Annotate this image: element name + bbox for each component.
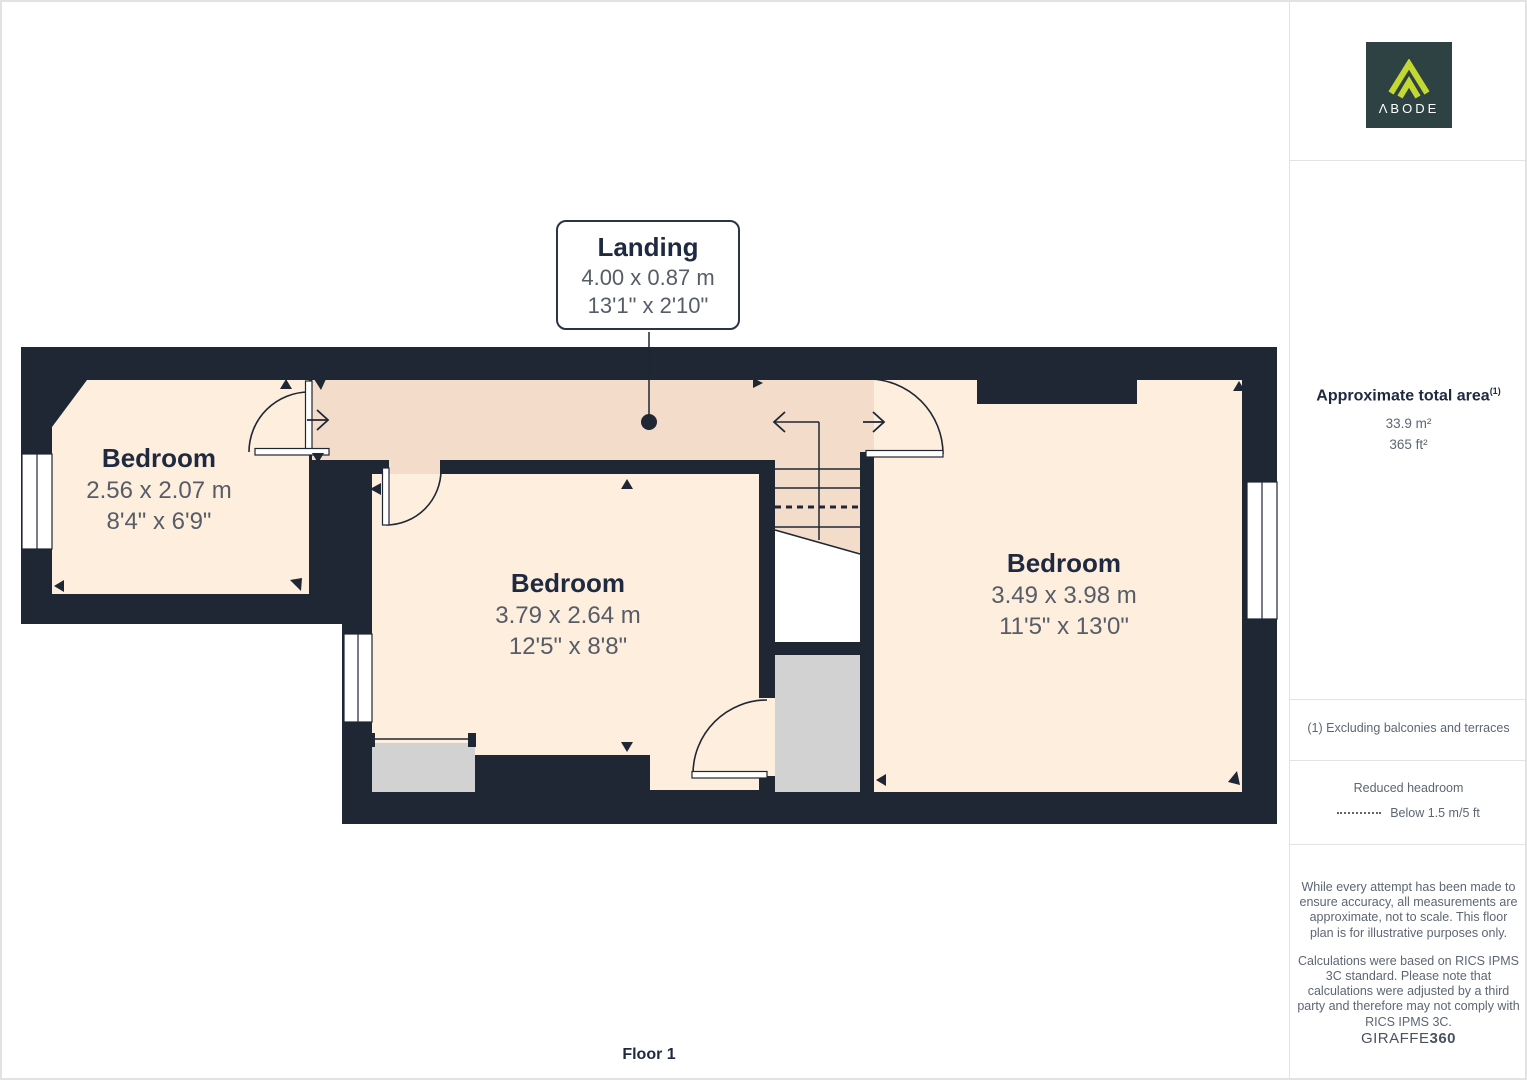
room-name: Bedroom bbox=[86, 442, 231, 475]
room-name: Bedroom bbox=[991, 547, 1136, 580]
floorplan-drawing bbox=[2, 2, 1289, 1080]
reduced-headroom-legend: Below 1.5 m/5 ft bbox=[1390, 805, 1480, 821]
room-size-metric: 3.49 x 3.98 m bbox=[991, 580, 1136, 611]
disclaimer-accuracy: While every attempt has been made to ens… bbox=[1297, 880, 1521, 941]
doorway-stairs bbox=[759, 698, 775, 776]
doorway-right bbox=[860, 380, 874, 454]
abode-logo: ΛBODE bbox=[1366, 42, 1452, 128]
floorplan-page: Bedroom 2.56 x 2.07 m 8'4" x 6'9" Bedroo… bbox=[0, 0, 1527, 1080]
stairs-right-wall bbox=[860, 452, 874, 792]
giraffe360-name: GIRAFFE bbox=[1361, 1030, 1430, 1047]
landing-label: Landing 4.00 x 0.87 m 13'1" x 2'10" bbox=[556, 220, 740, 330]
divider bbox=[1290, 760, 1527, 761]
window-middle-bedroom bbox=[344, 634, 372, 722]
room-size-metric: 2.56 x 2.07 m bbox=[86, 475, 231, 506]
bedroom-middle-label: Bedroom 3.79 x 2.64 m 12'5" x 8'8" bbox=[495, 567, 640, 662]
reduced-headroom-dash-icon bbox=[1337, 812, 1381, 814]
landing-floor bbox=[312, 380, 874, 462]
total-area-imperial: 365 ft² bbox=[1290, 434, 1527, 455]
total-area-metric: 33.9 m² bbox=[1290, 413, 1527, 434]
reduced-headroom-section: Reduced headroom Below 1.5 m/5 ft bbox=[1290, 780, 1527, 821]
room-size-metric: 3.79 x 2.64 m bbox=[495, 600, 640, 631]
total-area-section: Approximate total area(1) 33.9 m² 365 ft… bbox=[1290, 386, 1527, 455]
window-right-bedroom bbox=[1247, 482, 1277, 619]
room-name: Landing bbox=[558, 231, 738, 264]
giraffe360-brand: GIRAFFE360 bbox=[1290, 1030, 1527, 1047]
chimney-breast bbox=[977, 380, 1137, 404]
footnote-ref: (1) bbox=[1490, 386, 1501, 396]
abode-logo-text: ΛBODE bbox=[1379, 101, 1440, 116]
disclaimer-section: While every attempt has been made to ens… bbox=[1290, 880, 1527, 1043]
divider bbox=[1290, 699, 1527, 700]
floor-title: Floor 1 bbox=[622, 1046, 675, 1064]
bedroom-right-label: Bedroom 3.49 x 3.98 m 11'5" x 13'0" bbox=[991, 547, 1136, 642]
room-name: Bedroom bbox=[495, 567, 640, 600]
under-landing-wall bbox=[312, 460, 775, 474]
room-size-imperial: 12'5" x 8'8" bbox=[495, 631, 640, 662]
room-size-metric: 4.00 x 0.87 m bbox=[558, 264, 738, 292]
wardrobe-recess bbox=[372, 743, 475, 792]
doorway-middle bbox=[389, 460, 440, 474]
total-area-heading-text: Approximate total area bbox=[1316, 387, 1489, 404]
disclaimer-rics: Calculations were based on RICS IPMS 3C … bbox=[1297, 954, 1521, 1030]
stairwell-lower bbox=[775, 655, 860, 792]
floorplan-canvas: Bedroom 2.56 x 2.07 m 8'4" x 6'9" Bedroo… bbox=[2, 2, 1289, 1080]
total-area-heading: Approximate total area(1) bbox=[1290, 386, 1527, 405]
divider bbox=[1290, 160, 1527, 161]
window-left-bedroom bbox=[22, 454, 52, 549]
room-size-imperial: 11'5" x 13'0" bbox=[991, 611, 1136, 642]
divider bbox=[1290, 844, 1527, 845]
reduced-headroom-title: Reduced headroom bbox=[1290, 780, 1527, 796]
giraffe360-suffix: 360 bbox=[1429, 1030, 1456, 1047]
footnote-section: (1) Excluding balconies and terraces bbox=[1290, 720, 1527, 736]
abode-chevron-icon bbox=[1386, 59, 1432, 99]
bedroom-left-label: Bedroom 2.56 x 2.07 m 8'4" x 6'9" bbox=[86, 442, 231, 537]
room-size-imperial: 13'1" x 2'10" bbox=[558, 292, 738, 320]
info-sidebar: ΛBODE Approximate total area(1) 33.9 m² … bbox=[1289, 2, 1527, 1078]
room-size-imperial: 8'4" x 6'9" bbox=[86, 506, 231, 537]
